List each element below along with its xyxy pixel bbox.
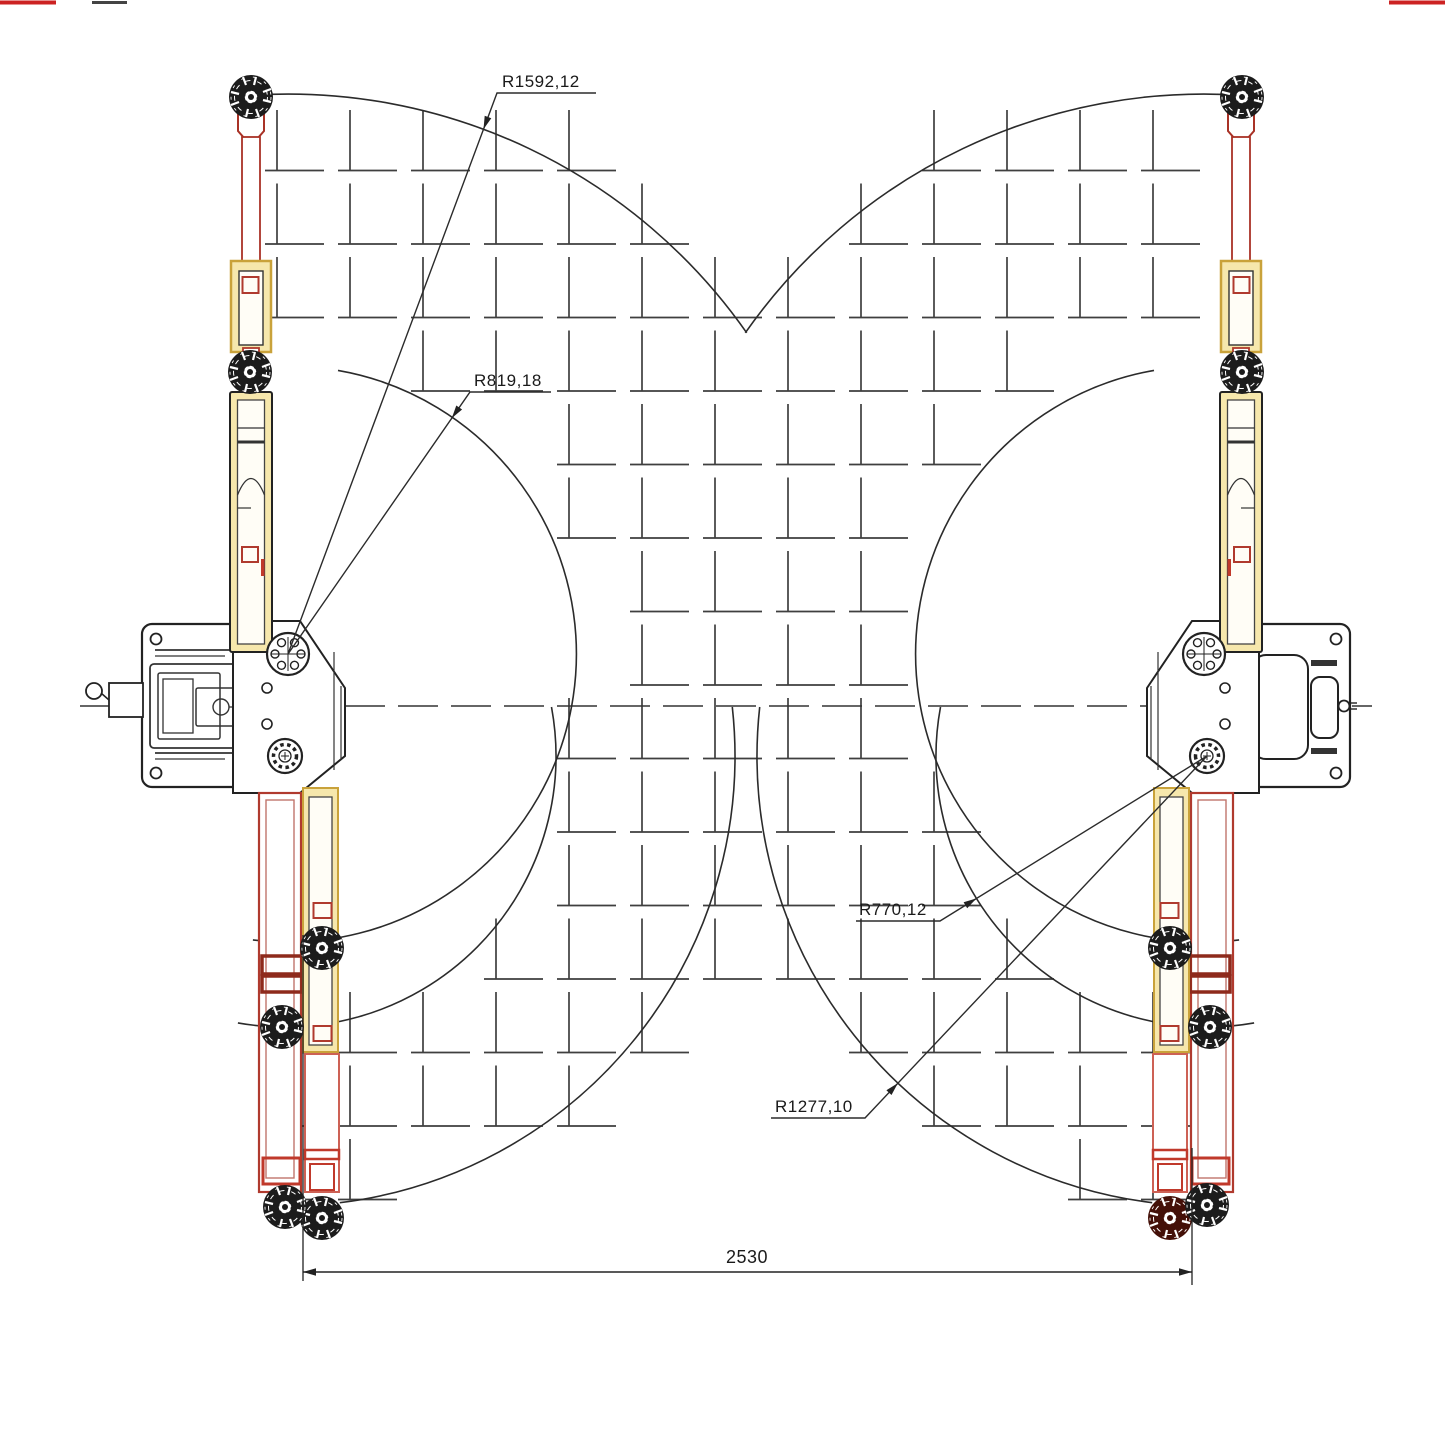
- width-dimension: 2530: [303, 935, 1192, 1285]
- pad-wheel: [1148, 926, 1192, 970]
- arc-r1592-left: [249, 94, 747, 333]
- radius-labels: R1592,12 R819,18 R770,12 R1277,10: [474, 72, 927, 1116]
- sweep-arcs: [238, 94, 1254, 1203]
- pad-wheel: [300, 926, 344, 970]
- pad-wheel: [1220, 350, 1264, 394]
- pad-wheel: [260, 1005, 304, 1049]
- floor-grid: [265, 110, 1200, 1200]
- radius-label-r819: R819,18: [474, 371, 542, 390]
- leader-r819: [288, 392, 551, 654]
- arc-r1277-left: [340, 707, 735, 1203]
- pad-wheel: [229, 75, 273, 119]
- pad-wheel: [300, 1196, 344, 1240]
- radius-leaders: [288, 93, 1207, 1118]
- arc-r1592-right: [745, 94, 1243, 333]
- pad-wheel: [1188, 1005, 1232, 1049]
- floor-grid-lines: [265, 110, 1200, 1200]
- pad-wheel: [1220, 75, 1264, 119]
- arc-r1277-right: [757, 707, 1152, 1203]
- dimension-value: 2530: [726, 1247, 768, 1267]
- power-unit-motor: [86, 650, 248, 759]
- cad-canvas: 2530 R1592,12 R819,18 R770,12 R1277,10: [0, 0, 1445, 1445]
- dim-arrow-left: [303, 1268, 316, 1276]
- radius-label-r770: R770,12: [859, 900, 927, 919]
- pad-wheel: [228, 350, 272, 394]
- leader-r1592: [288, 93, 596, 654]
- cad-drawing-page: 2530 R1592,12 R819,18 R770,12 R1277,10: [0, 0, 1445, 1445]
- dim-arrow-right: [1179, 1268, 1192, 1276]
- lift-pads: [228, 75, 1264, 1240]
- pad-wheel: [263, 1185, 307, 1229]
- leader-r1277: [771, 756, 1207, 1118]
- radius-label-r1592: R1592,12: [502, 72, 580, 91]
- radius-label-r1277: R1277,10: [775, 1097, 853, 1116]
